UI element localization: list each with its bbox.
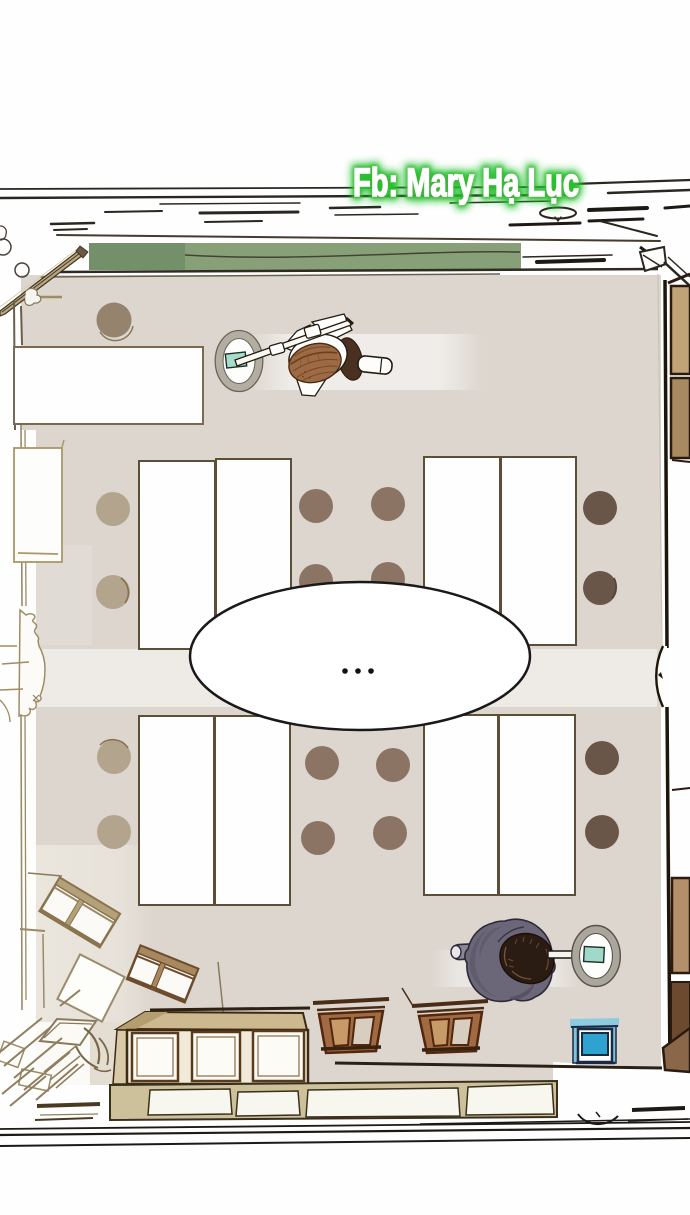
- svg-text:Fb: Mary Hạ Lục: Fb: Mary Hạ Lục: [353, 161, 579, 205]
